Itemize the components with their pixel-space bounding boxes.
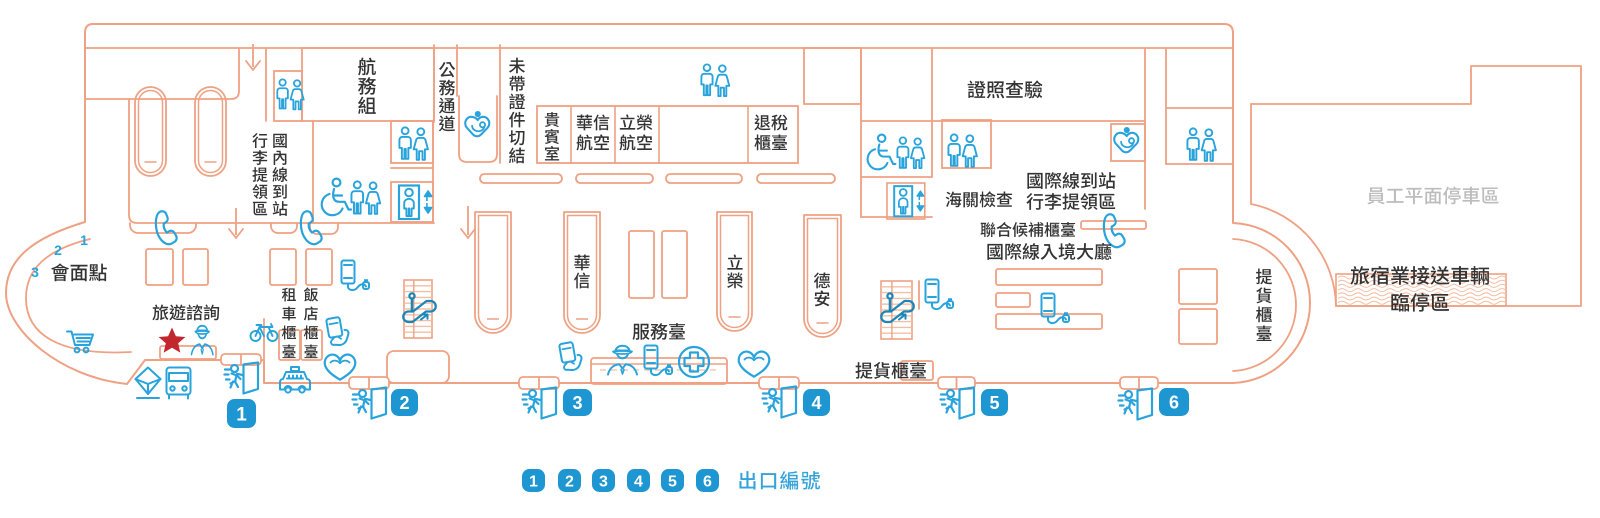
svg-text:6: 6 — [1169, 393, 1179, 413]
svg-text:4: 4 — [811, 393, 821, 413]
svg-text:1: 1 — [236, 404, 247, 425]
svg-text:4: 4 — [634, 473, 643, 490]
svg-text:5: 5 — [668, 473, 677, 490]
svg-text:6: 6 — [703, 473, 712, 490]
svg-text:5: 5 — [989, 393, 999, 413]
svg-text:2: 2 — [54, 242, 62, 258]
svg-text:3: 3 — [572, 393, 582, 413]
svg-text:2: 2 — [565, 473, 574, 490]
svg-text:3: 3 — [31, 264, 39, 280]
svg-text:2: 2 — [399, 393, 409, 413]
svg-text:1: 1 — [80, 232, 88, 248]
svg-text:3: 3 — [599, 473, 608, 490]
svg-text:1: 1 — [529, 473, 538, 490]
